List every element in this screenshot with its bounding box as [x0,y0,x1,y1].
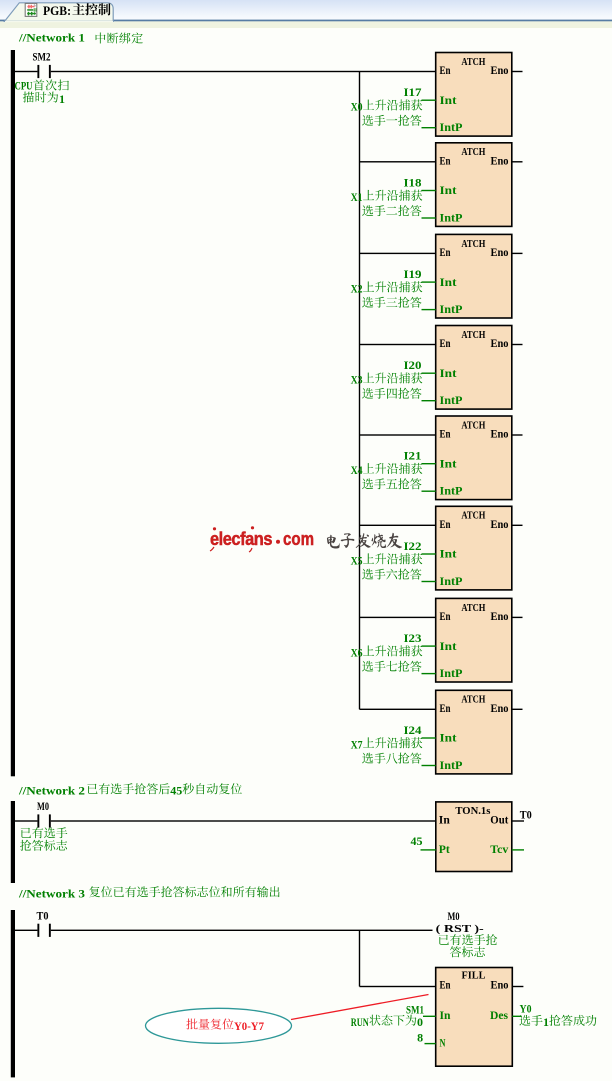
svg-text:Int: Int [440,185,457,197]
svg-text:En: En [440,247,451,259]
svg-text:I24: I24 [404,725,422,737]
svg-text:Int: Int [440,641,457,653]
svg-text:ATCH: ATCH [461,56,485,68]
svg-text:Int: Int [440,458,457,470]
svg-text:Eno: Eno [491,247,509,259]
svg-text:Int: Int [440,368,457,380]
svg-text://Network 3: //Network 3 [18,889,85,901]
svg-text:T0: T0 [520,810,532,822]
svg-text:En: En [440,338,451,350]
svg-text:I17: I17 [404,87,422,99]
svg-text:ATCH: ATCH [461,694,485,706]
svg-text:X0: X0 [351,102,363,114]
svg-text:En: En [440,519,451,531]
svg-text:Int: Int [440,95,457,107]
svg-text:FILL: FILL [462,970,486,982]
svg-text:ATCH: ATCH [461,510,485,522]
svg-text:45: 45 [411,836,423,848]
svg-text:In: In [440,1010,452,1022]
svg-text:IntP: IntP [440,212,463,224]
svg-text:Eno: Eno [491,429,509,441]
svg-text:CPU: CPU [15,81,34,93]
svg-text:M0: M0 [448,911,460,923]
svg-text:I21: I21 [404,451,422,463]
svg-text:TON.1s: TON.1s [455,805,490,817]
svg-text:Eno: Eno [491,611,509,623]
svg-text:Pt: Pt [439,844,450,856]
svg-text:I23: I23 [404,633,422,645]
svg-text:X6: X6 [351,648,363,660]
svg-text:45: 45 [170,786,182,798]
svg-text:Eno: Eno [491,703,509,715]
svg-text:( RST )-: ( RST )- [436,923,485,935]
svg-text:Int: Int [440,549,457,561]
svg-text:Y0-Y7: Y0-Y7 [234,1021,264,1033]
svg-text:X5: X5 [351,556,363,568]
svg-text:IntP: IntP [440,668,463,680]
svg-text:IntP: IntP [440,304,463,316]
svg-text:I19: I19 [404,269,422,281]
svg-text://Network 1: //Network 1 [18,33,85,45]
svg-text:IntP: IntP [440,486,463,498]
svg-text:IntP: IntP [440,760,463,772]
svg-text:N: N [440,1038,446,1050]
svg-text:Eno: Eno [491,980,509,992]
svg-text:En: En [440,980,451,992]
svg-text:Y0: Y0 [520,1004,532,1016]
svg-text:I22: I22 [404,541,422,553]
svg-text:Eno: Eno [491,519,509,531]
svg-text:8: 8 [417,1033,423,1045]
svg-text:En: En [440,429,451,441]
svg-text:Eno: Eno [491,65,509,77]
svg-text:1: 1 [543,1017,549,1029]
svg-text:elecfans: elecfans [210,528,272,549]
svg-text:ATCH: ATCH [461,329,485,341]
svg-text:Out: Out [490,814,508,826]
svg-text:1: 1 [59,94,65,106]
svg-text:X4: X4 [351,465,363,477]
svg-text:En: En [440,703,451,715]
svg-text:Tcv: Tcv [490,844,508,856]
svg-text:T0: T0 [37,910,49,922]
svg-text:In: In [439,814,451,826]
svg-text:I18: I18 [404,177,422,189]
svg-text:SM2: SM2 [33,52,51,64]
svg-text:Int: Int [440,277,457,289]
svg-text:IntP: IntP [440,576,463,588]
svg-text://Network 2: //Network 2 [18,786,85,798]
svg-text:PGB:: PGB: [43,4,71,18]
svg-text:Eno: Eno [491,155,509,167]
svg-text:X7: X7 [351,740,363,752]
svg-text:ATCH: ATCH [461,146,485,158]
svg-text:Eno: Eno [491,338,509,350]
svg-text:SM1: SM1 [406,1004,424,1016]
svg-text:IntP: IntP [440,395,463,407]
svg-text:X3: X3 [351,375,363,387]
svg-text:Des: Des [490,1010,509,1022]
svg-text:ATCH: ATCH [461,238,485,250]
svg-text:IntP: IntP [440,122,463,134]
svg-text:ATCH: ATCH [461,419,485,431]
svg-text:X2: X2 [351,284,363,296]
svg-text:RUN: RUN [351,1017,369,1029]
svg-text:com: com [283,528,314,549]
svg-text:0: 0 [417,1017,423,1029]
svg-text:ATCH: ATCH [461,602,485,614]
svg-text:I20: I20 [404,360,422,372]
svg-text:M0: M0 [37,801,49,813]
svg-text:En: En [440,611,451,623]
svg-text:Int: Int [440,733,457,745]
svg-text:En: En [440,65,451,77]
svg-text:En: En [440,155,451,167]
svg-text:X1: X1 [351,192,363,204]
